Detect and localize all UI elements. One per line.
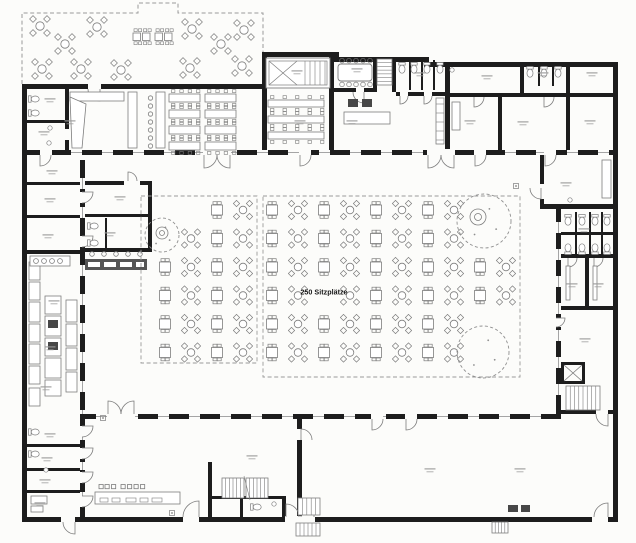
wc-bowl	[592, 217, 598, 225]
wc-bowl	[604, 217, 610, 225]
wc-bowl	[555, 69, 561, 77]
dark-equipment	[48, 320, 58, 328]
door-opening	[474, 149, 486, 156]
equipment	[29, 282, 40, 300]
dining-table-square	[160, 291, 171, 301]
wc-fixture	[29, 451, 40, 457]
wc-bowl	[31, 451, 39, 457]
door-opening	[40, 149, 52, 156]
dining-table-square	[319, 205, 330, 215]
equipment	[70, 92, 124, 101]
interior-wall	[561, 362, 585, 365]
counter-slit	[88, 262, 100, 267]
room-label-mark	[115, 196, 126, 198]
interior-wall	[561, 232, 613, 235]
room-label-mark	[538, 72, 549, 74]
door-opening	[80, 192, 86, 203]
dining-table-round	[450, 235, 458, 243]
room-label-mark	[587, 123, 594, 124]
wc-bowl	[527, 69, 533, 77]
interior-wall	[208, 462, 212, 517]
wc-fixture	[527, 67, 533, 78]
equipment	[66, 324, 77, 346]
dining-table-round	[398, 292, 406, 300]
long-dining-table	[205, 142, 236, 150]
dining-table-round	[239, 349, 247, 357]
dining-table-square	[371, 348, 382, 358]
wc-fixture	[565, 215, 571, 226]
dining-table-square	[423, 319, 434, 329]
door-opening	[544, 149, 556, 156]
terrace-table-round	[36, 22, 44, 30]
interior-wall	[27, 215, 80, 218]
room-label-mark	[580, 338, 591, 340]
room-label-mark	[465, 120, 476, 122]
dark-equipment	[508, 505, 518, 512]
tree-dot	[494, 359, 496, 361]
wc-tank	[424, 63, 430, 66]
interior-wall	[27, 490, 80, 493]
wc-fixture	[437, 63, 443, 74]
equipment	[344, 112, 390, 124]
interior-wall	[364, 88, 377, 92]
equipment	[128, 92, 137, 148]
meeting-table	[338, 64, 372, 81]
room-label-mark	[517, 471, 524, 472]
interior-wall	[392, 57, 396, 92]
symbol-marker-dot	[171, 512, 173, 514]
interior-wall	[27, 468, 80, 471]
equipment	[602, 160, 611, 198]
wc-fixture	[592, 215, 598, 226]
wc-tank	[251, 504, 254, 510]
wall-corner	[22, 517, 618, 522]
long-dining-table	[169, 94, 200, 102]
dining-table-square	[371, 234, 382, 244]
room-label-mark	[65, 120, 76, 122]
room-label-mark	[44, 460, 51, 461]
terrace-table-round	[188, 25, 196, 33]
room-label-mark	[45, 433, 56, 435]
terrace-table-round	[77, 65, 85, 73]
dining-table-square	[371, 262, 382, 272]
tree-dot	[489, 208, 491, 210]
dining-table-square	[212, 262, 223, 272]
dining-table-square	[212, 291, 223, 301]
long-dining-table	[169, 110, 200, 118]
dining-table-round	[346, 320, 354, 328]
equipment	[66, 348, 77, 370]
interior-wall	[433, 60, 435, 90]
dining-table-round	[502, 263, 510, 271]
dining-table-round	[346, 263, 354, 271]
tree-dot	[169, 239, 171, 241]
door-opening	[424, 92, 432, 96]
room-label-mark	[467, 123, 474, 124]
room-label-mark	[292, 70, 303, 72]
counter-slit	[104, 262, 116, 267]
wc-fixture	[579, 215, 585, 226]
interior-wall	[27, 120, 67, 123]
room-label-mark	[595, 286, 602, 287]
dining-table-square	[212, 348, 223, 358]
wc-tank	[29, 429, 32, 435]
dining-table-square	[319, 234, 330, 244]
room-label-mark	[415, 72, 426, 74]
wc-bowl	[90, 223, 98, 229]
dining-table-square	[160, 319, 171, 329]
dining-table-round	[187, 320, 195, 328]
wc-bowl	[399, 65, 405, 73]
interior-wall	[282, 496, 286, 517]
wc-tank	[437, 63, 443, 66]
interior-wall	[498, 97, 502, 150]
room-label-mark	[563, 185, 570, 186]
terrace-table-round	[238, 62, 246, 70]
dining-table-round	[450, 320, 458, 328]
plate-circle	[58, 259, 63, 264]
dining-table-square	[423, 262, 434, 272]
wc-tank	[592, 252, 598, 255]
wc-fixture	[399, 63, 405, 74]
equipment	[452, 102, 460, 130]
wc-tank	[411, 63, 417, 66]
door-opening	[88, 83, 101, 90]
room-label-mark	[105, 232, 116, 234]
sink	[47, 141, 51, 145]
door-opening	[124, 181, 140, 185]
interior-wall	[85, 214, 148, 217]
equipment	[29, 344, 40, 364]
room-label-mark	[117, 199, 124, 200]
interior-wall	[540, 204, 616, 209]
interior-wall	[540, 155, 544, 184]
room-label-mark	[45, 346, 56, 348]
room-label-mark	[47, 436, 54, 437]
tree-dot	[473, 364, 475, 366]
dining-table-square	[267, 234, 278, 244]
long-dining-table	[205, 126, 236, 134]
wc-tank	[604, 252, 610, 255]
counter-slit	[120, 262, 132, 267]
equipment	[45, 358, 61, 378]
wc-fixture	[604, 244, 610, 255]
room-label-mark	[47, 101, 54, 102]
dining-table-round	[398, 263, 406, 271]
terrace-table-round	[186, 64, 194, 72]
terrace-table-round	[93, 23, 101, 31]
dining-table-round	[239, 320, 247, 328]
wall-corner	[22, 84, 27, 522]
equipment	[29, 366, 40, 384]
wc-bowl	[253, 504, 261, 510]
interior-wall	[85, 181, 152, 185]
wc-fixture	[251, 504, 262, 510]
dining-table-round	[294, 206, 302, 214]
plate-circle	[50, 259, 55, 264]
wc-bowl	[31, 110, 39, 116]
room-label-mark	[294, 73, 301, 74]
room-label-mark	[107, 235, 114, 236]
room-label-mark	[585, 120, 596, 122]
room-label-mark	[518, 121, 529, 123]
wc-bowl	[565, 217, 571, 225]
dining-table-square	[212, 205, 223, 215]
wall-corner	[22, 84, 267, 89]
wc-tank	[604, 215, 610, 218]
room-label-mark	[589, 75, 596, 76]
door-opening	[61, 516, 75, 523]
terrace-table-square	[165, 33, 173, 41]
plate-circle	[42, 259, 47, 264]
room-label-mark	[43, 389, 50, 390]
interior-wall	[334, 88, 356, 92]
wc-tank	[579, 215, 585, 218]
door-opening	[405, 413, 417, 420]
door-opening	[400, 92, 408, 96]
equipment	[29, 302, 40, 322]
tree-dot	[165, 226, 167, 228]
tree-dot	[155, 243, 157, 245]
dining-table-round	[346, 235, 354, 243]
room-label-mark	[581, 231, 588, 232]
room-label-mark	[425, 468, 436, 470]
terrace-table-round	[240, 26, 248, 34]
room-label-mark	[582, 341, 589, 342]
door-opening	[80, 426, 86, 437]
wc-tank	[527, 67, 533, 70]
dining-table-round	[346, 349, 354, 357]
interior-wall	[297, 414, 302, 429]
dining-table-round	[187, 349, 195, 357]
sink	[568, 198, 572, 202]
interior-wall	[566, 62, 570, 93]
room-label-mark	[579, 228, 590, 230]
dining-table-round	[187, 263, 195, 271]
wc-tank	[399, 63, 405, 66]
dining-table-square	[160, 262, 171, 272]
room-label-mark	[297, 123, 304, 124]
interior-wall	[27, 444, 80, 447]
long-dining-table	[205, 94, 236, 102]
dining-table-round	[450, 292, 458, 300]
room-label-mark	[43, 234, 54, 236]
dining-table-round	[398, 206, 406, 214]
long-dining-table	[205, 110, 236, 118]
wc-fixture	[579, 244, 585, 255]
dining-table-square	[371, 291, 382, 301]
wc-fixture	[565, 244, 571, 255]
equipment	[156, 92, 165, 148]
interior-wall	[450, 93, 613, 97]
room-label-mark	[249, 458, 256, 459]
room-label-mark	[47, 170, 58, 172]
dining-table-round	[294, 320, 302, 328]
wc-tank	[555, 67, 561, 70]
wc-bowl	[579, 217, 585, 225]
long-dining-table	[169, 126, 200, 134]
room-label-mark	[515, 468, 526, 470]
symbol-marker-dot	[102, 417, 104, 419]
interior-wall	[566, 97, 570, 150]
wc-bowl	[579, 244, 585, 252]
room-label-mark	[417, 75, 424, 76]
dining-table-round	[294, 263, 302, 271]
interior-wall	[561, 362, 564, 384]
wc-tank	[29, 110, 32, 116]
dining-table-round	[239, 235, 247, 243]
long-dining-table	[268, 100, 324, 107]
room-label-mark	[42, 457, 53, 459]
door-opening	[80, 496, 86, 507]
interior-wall	[27, 182, 80, 185]
room-label-mark	[247, 455, 258, 457]
wc-fixture	[411, 63, 417, 74]
sink	[44, 468, 48, 472]
terrace-table-round	[38, 65, 46, 73]
equipment	[29, 388, 40, 406]
room-label-mark	[42, 482, 49, 483]
floor-plan-page: 250 Sitzplätze	[0, 0, 636, 543]
room-label-mark	[354, 71, 361, 72]
interior-wall	[445, 62, 450, 150]
floor-plan-drawing: 250 Sitzplätze	[0, 0, 636, 543]
wc-bowl	[604, 244, 610, 252]
room-label-mark	[45, 237, 52, 238]
dining-table-square	[423, 348, 434, 358]
wc-tank	[565, 215, 571, 218]
wc-bowl	[437, 65, 443, 73]
room-label-mark	[561, 182, 572, 184]
wc-bowl	[90, 240, 98, 246]
interior-wall	[65, 140, 69, 150]
room-label-mark	[295, 120, 306, 122]
long-dining-table	[268, 132, 324, 139]
room-label-mark	[35, 502, 46, 504]
door-opening	[596, 410, 608, 415]
equipment	[436, 98, 444, 144]
room-label-mark	[45, 198, 56, 200]
door-opening	[285, 516, 315, 523]
wc-fixture	[88, 223, 99, 229]
tree-dot	[474, 234, 476, 236]
terrace-table-round	[61, 40, 69, 48]
room-label-mark	[569, 286, 576, 287]
dining-table-round	[294, 349, 302, 357]
door-opening	[80, 236, 86, 247]
plate-circle	[34, 259, 39, 264]
wc-tank	[565, 252, 571, 255]
room-label-mark	[427, 471, 434, 472]
equipment	[45, 296, 61, 314]
long-dining-table	[169, 142, 200, 150]
dining-table-square	[267, 348, 278, 358]
terrace-table-round	[217, 40, 225, 48]
dining-table-round	[187, 235, 195, 243]
room-label-mark	[67, 123, 74, 124]
dining-table-round	[398, 235, 406, 243]
counter-slit	[136, 262, 144, 267]
terrace-table-square	[133, 33, 141, 41]
equipment	[66, 300, 77, 322]
interior-wall	[585, 258, 589, 306]
wc-tank	[29, 451, 32, 457]
dining-table-square	[267, 205, 278, 215]
dining-table-round	[450, 206, 458, 214]
interior-wall	[85, 248, 152, 252]
dining-table-square	[267, 262, 278, 272]
room-label-mark	[349, 123, 356, 124]
room-label-mark	[482, 75, 493, 77]
dining-table-round	[239, 206, 247, 214]
equipment	[31, 506, 43, 512]
wc-bowl	[565, 244, 571, 252]
sink	[48, 126, 52, 130]
wc-fixture	[592, 244, 598, 255]
wc-bowl	[592, 244, 598, 252]
interior-wall	[582, 362, 585, 384]
dining-table-square	[319, 262, 330, 272]
dining-table-round	[346, 206, 354, 214]
wc-tank	[579, 252, 585, 255]
dining-table-square	[160, 348, 171, 358]
terrace-table-square	[143, 33, 151, 41]
wc-fixture	[424, 63, 430, 74]
room-label-mark	[45, 98, 56, 100]
dining-table-square	[423, 291, 434, 301]
wc-fixture	[88, 240, 99, 246]
dark-equipment	[362, 99, 372, 107]
interior-wall	[601, 212, 603, 232]
dining-table-round	[239, 263, 247, 271]
interior-wall	[373, 57, 377, 92]
dining-table-square	[475, 262, 486, 272]
interior-wall	[575, 235, 577, 254]
wc-tank	[88, 223, 91, 229]
dining-table-square	[423, 205, 434, 215]
dining-table-square	[267, 291, 278, 301]
dining-table-square	[475, 291, 486, 301]
room-label-mark	[37, 505, 44, 506]
equipment	[45, 380, 61, 396]
dining-table-square	[319, 348, 330, 358]
dark-equipment	[521, 505, 530, 512]
interior-wall	[589, 235, 591, 254]
dining-table-round	[398, 349, 406, 357]
dining-table-square	[371, 319, 382, 329]
dining-table-square	[371, 205, 382, 215]
room-label-mark	[47, 349, 54, 350]
room-label-mark	[484, 78, 491, 79]
room-label-mark	[41, 386, 52, 388]
wc-fixture	[29, 110, 40, 116]
wc-tank	[541, 67, 547, 70]
dining-table-round	[502, 292, 510, 300]
door-opening	[80, 472, 86, 483]
tree-dot	[495, 228, 497, 230]
wc-fixture	[29, 429, 40, 435]
dining-table-square	[319, 319, 330, 329]
dining-table-square	[267, 319, 278, 329]
room-label-mark	[41, 134, 48, 135]
wall-corner	[613, 62, 618, 522]
dining-table-round	[187, 292, 195, 300]
dining-table-round	[450, 263, 458, 271]
wc-tank	[592, 215, 598, 218]
wc-tank	[88, 240, 91, 246]
room-label-mark	[520, 124, 527, 125]
door-opening	[299, 149, 311, 156]
